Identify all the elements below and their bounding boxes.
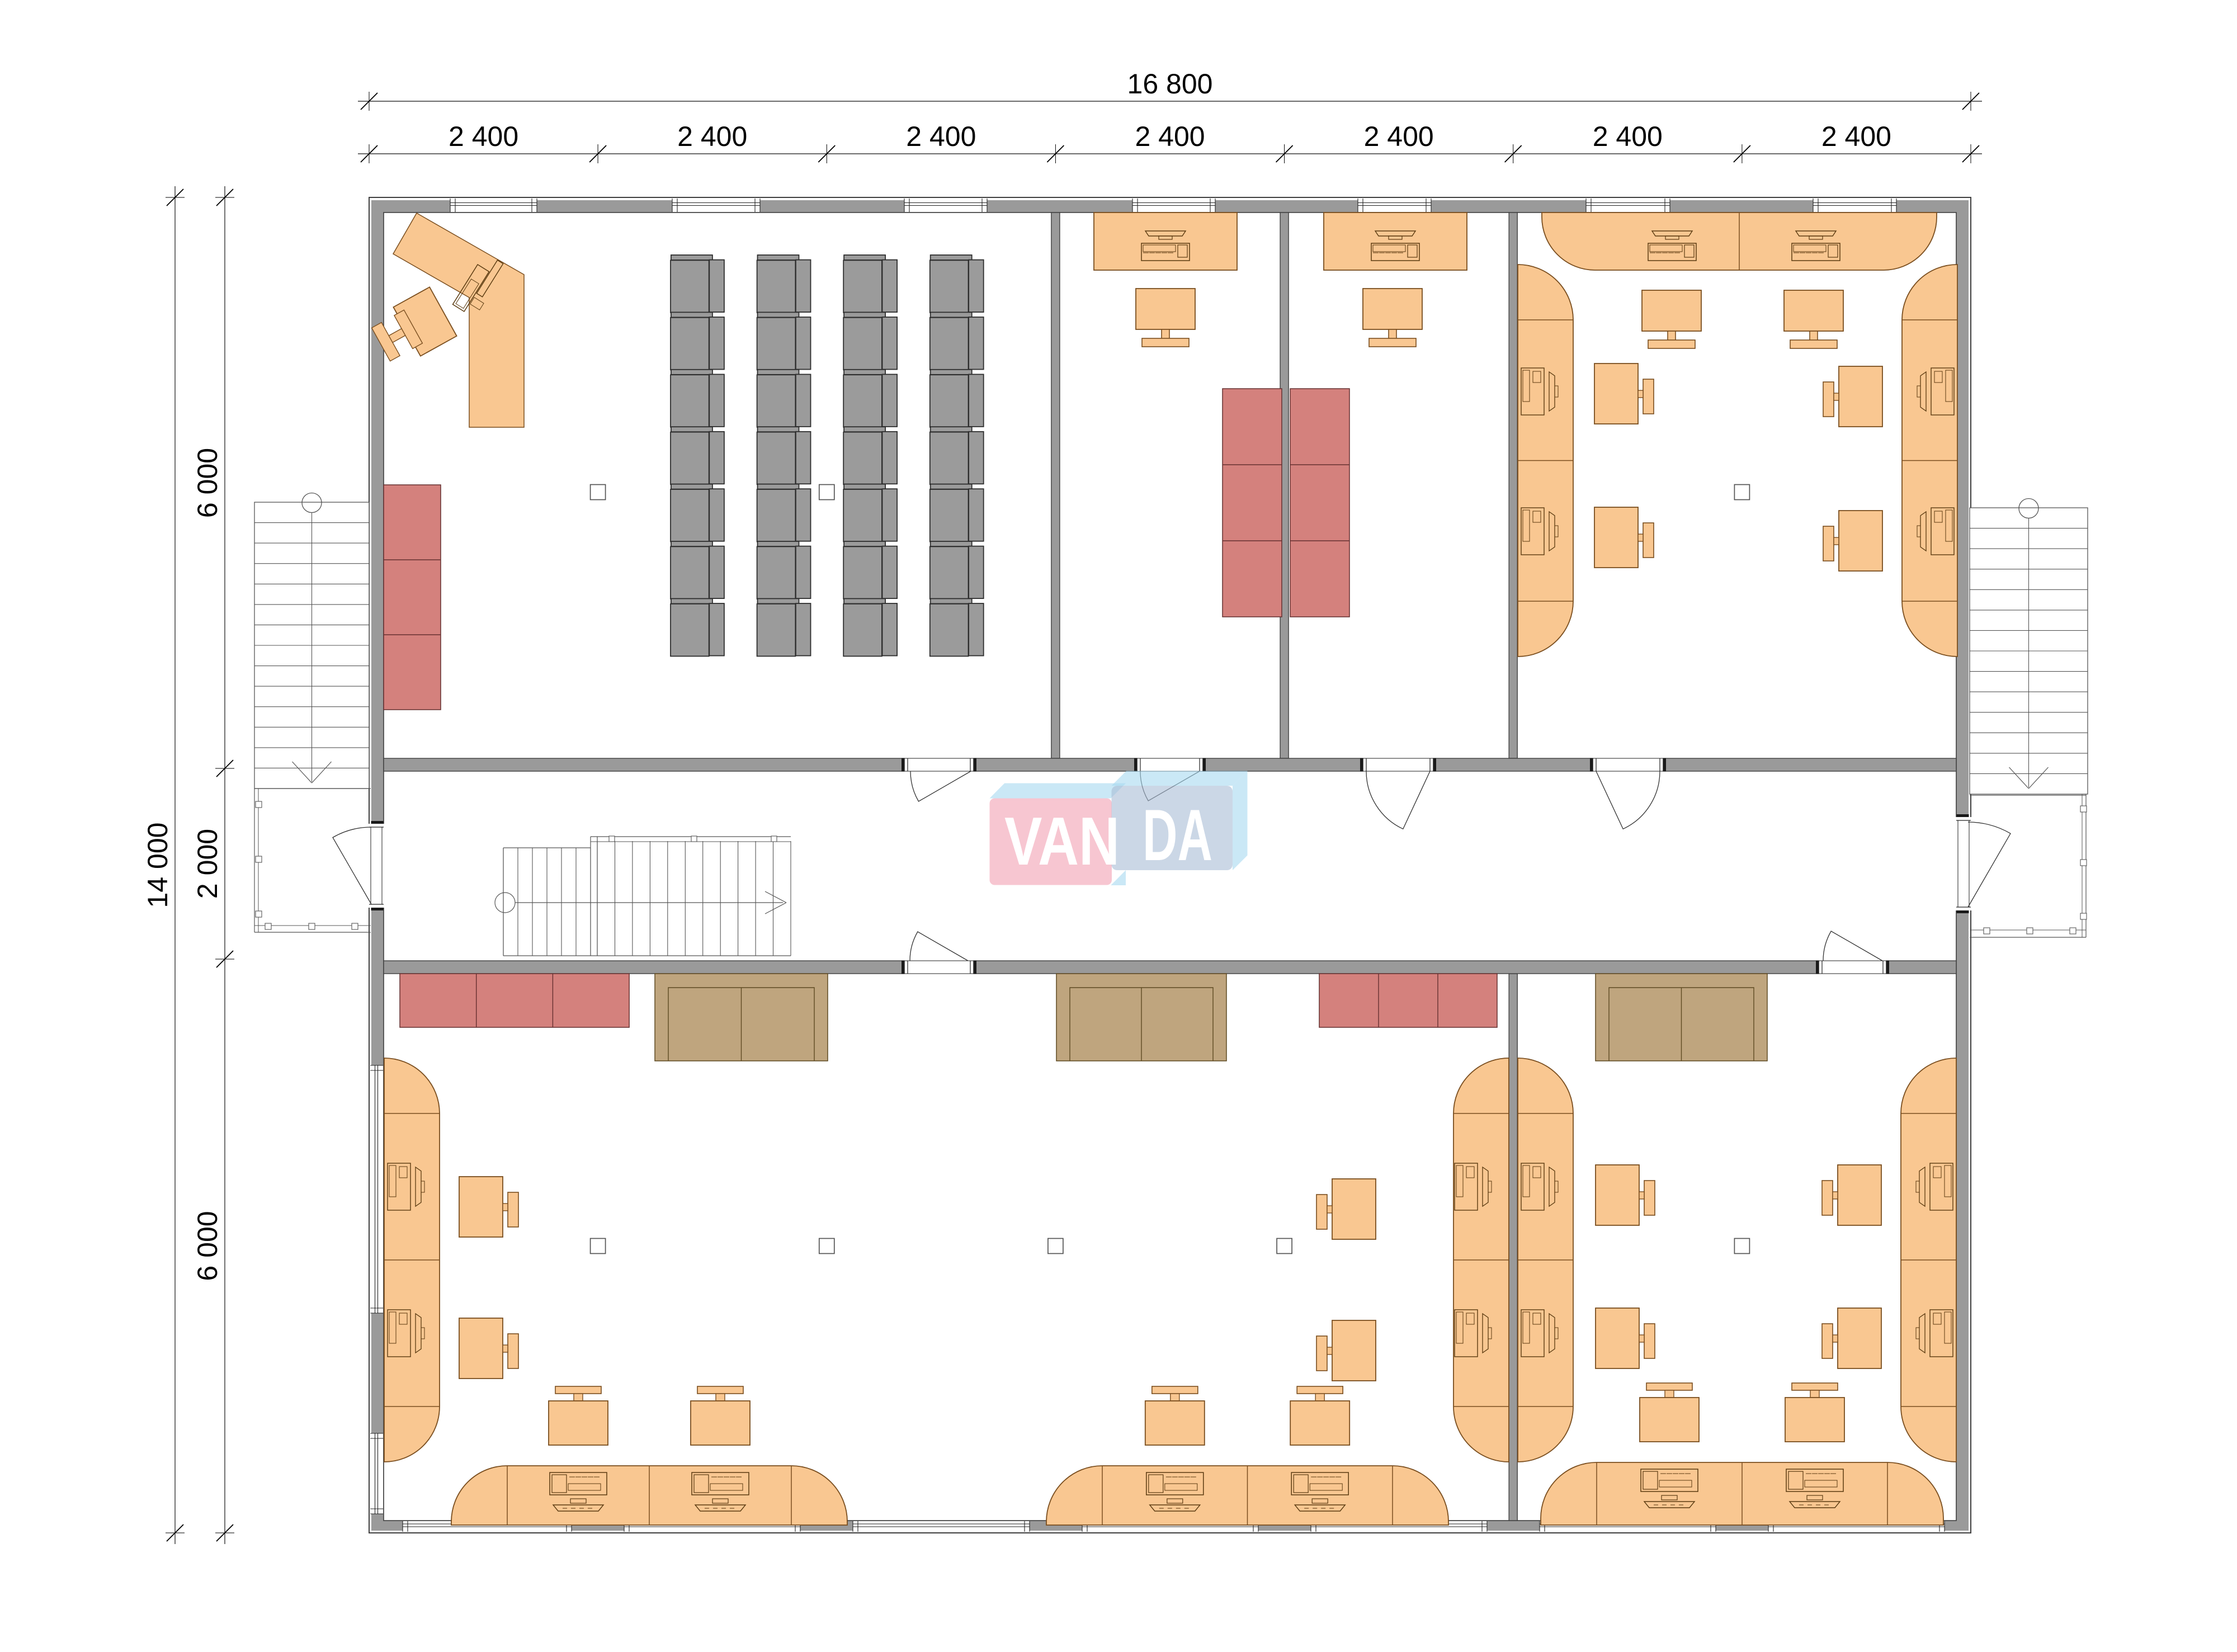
svg-text:6 000: 6 000 xyxy=(192,448,223,518)
svg-text:2 400: 2 400 xyxy=(1593,121,1663,152)
svg-text:16 800: 16 800 xyxy=(1127,68,1213,100)
svg-text:2 000: 2 000 xyxy=(192,829,223,899)
svg-text:2 400: 2 400 xyxy=(677,121,747,152)
svg-text:2 400: 2 400 xyxy=(1364,121,1434,152)
svg-text:2 400: 2 400 xyxy=(449,121,518,152)
svg-text:VAN: VAN xyxy=(1004,803,1120,879)
svg-text:2 400: 2 400 xyxy=(1135,121,1205,152)
svg-text:14 000: 14 000 xyxy=(142,823,173,908)
svg-text:2 400: 2 400 xyxy=(1821,121,1891,152)
svg-text:DA: DA xyxy=(1143,794,1212,876)
svg-text:2 400: 2 400 xyxy=(906,121,976,152)
svg-text:6 000: 6 000 xyxy=(192,1211,223,1281)
